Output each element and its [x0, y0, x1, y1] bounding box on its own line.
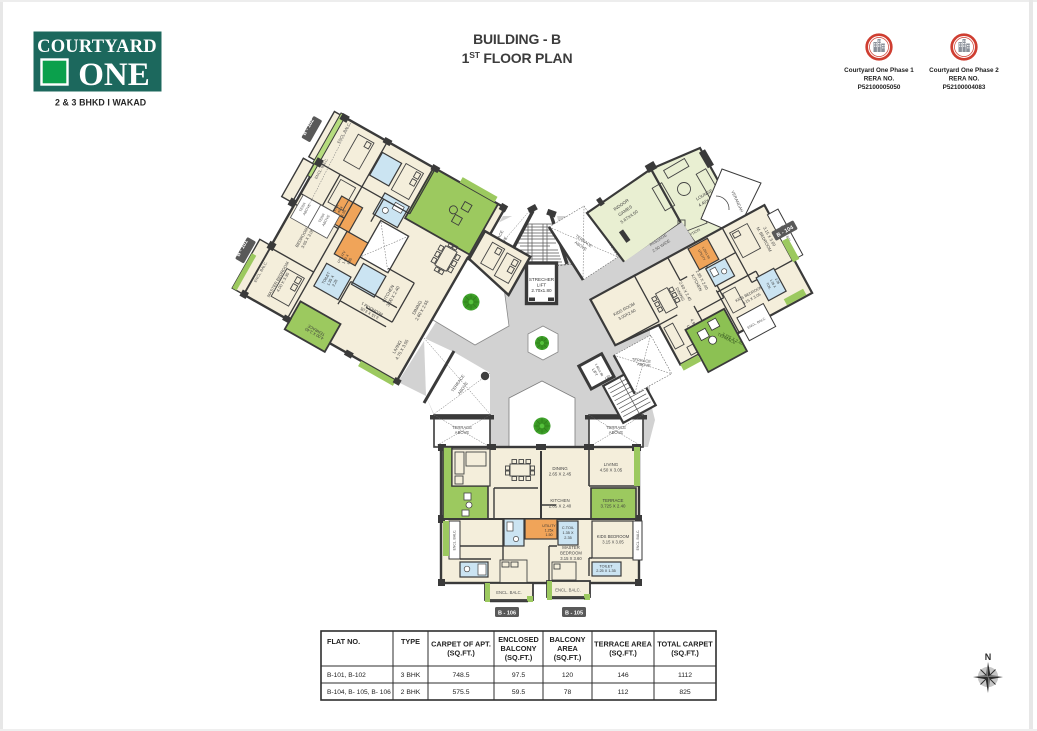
svg-text:78: 78 [564, 689, 572, 696]
svg-text:LIVING: LIVING [604, 462, 619, 467]
svg-text:2.65 X 2.45: 2.65 X 2.45 [549, 472, 572, 477]
svg-text:59.5: 59.5 [512, 689, 525, 696]
svg-text:ENCL. BALC.: ENCL. BALC. [636, 530, 640, 551]
svg-text:(SQ.FT.): (SQ.FT.) [505, 653, 533, 662]
svg-text:N: N [985, 652, 992, 662]
svg-text:KITCHEN: KITCHEN [550, 498, 569, 503]
svg-text:ENCL. BALC.: ENCL. BALC. [453, 530, 457, 551]
svg-text:4.50 X 3.05: 4.50 X 3.05 [600, 468, 623, 473]
svg-text:146: 146 [617, 672, 629, 679]
svg-text:112: 112 [618, 689, 629, 696]
svg-text:STRECHER: STRECHER [529, 277, 555, 282]
svg-text:120: 120 [562, 672, 574, 679]
svg-text:(SQ.FT.): (SQ.FT.) [671, 649, 699, 658]
svg-text:1.25x: 1.25x [545, 529, 554, 533]
svg-text:Courtyard One Phase 2: Courtyard One Phase 2 [929, 67, 999, 74]
svg-text:RERA NO.: RERA NO. [949, 76, 980, 83]
svg-text:ENCL. BALC.: ENCL. BALC. [555, 588, 581, 593]
svg-text:(SQ.FT.): (SQ.FT.) [447, 649, 475, 658]
svg-text:2.70x1.80: 2.70x1.80 [531, 288, 552, 293]
svg-text:TERRACE AREA: TERRACE AREA [594, 640, 652, 649]
svg-text:1.50: 1.50 [546, 533, 553, 537]
svg-text:TOTAL CARPET: TOTAL CARPET [657, 640, 713, 649]
svg-text:825: 825 [679, 689, 691, 696]
svg-text:P52100005050: P52100005050 [858, 84, 901, 91]
svg-text:575.5: 575.5 [452, 689, 469, 696]
svg-text:3.725 X 2.40: 3.725 X 2.40 [601, 504, 626, 509]
svg-text:2 BHK: 2 BHK [401, 689, 421, 696]
svg-text:ENCLOSED: ENCLOSED [498, 635, 539, 644]
svg-text:MASTER: MASTER [562, 545, 579, 550]
svg-text:2.25 X 1.35: 2.25 X 1.35 [596, 569, 615, 573]
svg-text:748.5: 748.5 [452, 672, 469, 679]
svg-text:TOILET: TOILET [599, 565, 613, 569]
svg-text:2.35: 2.35 [564, 536, 571, 540]
svg-text:AREA: AREA [557, 644, 578, 653]
svg-text:COURTYARD: COURTYARD [37, 37, 157, 57]
svg-text:2 & 3 BHKD I WAKAD: 2 & 3 BHKD I WAKAD [55, 98, 146, 108]
svg-text:2.85 X 2.40: 2.85 X 2.40 [549, 504, 572, 509]
svg-text:C.TOIL: C.TOIL [562, 526, 574, 530]
svg-text:DINING: DINING [552, 466, 568, 471]
svg-text:CARPET OF APT.: CARPET OF APT. [431, 640, 491, 649]
svg-text:1112: 1112 [678, 672, 692, 679]
svg-text:97.5: 97.5 [512, 672, 525, 679]
svg-text:P52100004083: P52100004083 [943, 84, 986, 91]
svg-text:KIDS BEDROOM: KIDS BEDROOM [597, 534, 630, 539]
svg-text:(SQ.FT.): (SQ.FT.) [609, 649, 637, 658]
svg-text:B - 105: B - 105 [565, 611, 583, 617]
svg-text:FLAT NO.: FLAT NO. [327, 637, 360, 646]
svg-text:BALCONY: BALCONY [500, 644, 536, 653]
svg-text:BUILDING - B: BUILDING - B [473, 31, 561, 47]
svg-text:LIFT: LIFT [537, 283, 547, 288]
svg-text:UTILITY: UTILITY [542, 524, 556, 528]
svg-text:1.35 X: 1.35 X [563, 531, 574, 535]
svg-text:B-104, B- 105, B- 106: B-104, B- 105, B- 106 [327, 689, 391, 696]
svg-text:ONE: ONE [78, 57, 150, 93]
svg-text:3.15 X 3.05: 3.15 X 3.05 [602, 540, 624, 545]
svg-text:B - 106: B - 106 [498, 611, 516, 617]
svg-text:ABOVE: ABOVE [455, 430, 470, 435]
svg-text:BALCONY: BALCONY [549, 635, 585, 644]
svg-text:B-101, B-102: B-101, B-102 [327, 672, 366, 679]
svg-text:BEDROOM: BEDROOM [560, 551, 582, 556]
svg-text:RERA NO.: RERA NO. [864, 76, 895, 83]
svg-text:TERRACE: TERRACE [603, 498, 624, 503]
svg-text:(SQ.FT.): (SQ.FT.) [554, 653, 582, 662]
svg-text:ENCL. BALC.: ENCL. BALC. [496, 590, 522, 595]
svg-text:Courtyard One Phase 1: Courtyard One Phase 1 [844, 67, 914, 74]
svg-text:3.15 X 3.60: 3.15 X 3.60 [560, 556, 582, 561]
svg-text:3 BHK: 3 BHK [401, 672, 421, 679]
svg-text:ABOVE: ABOVE [609, 430, 624, 435]
svg-text:TYPE: TYPE [401, 637, 420, 646]
